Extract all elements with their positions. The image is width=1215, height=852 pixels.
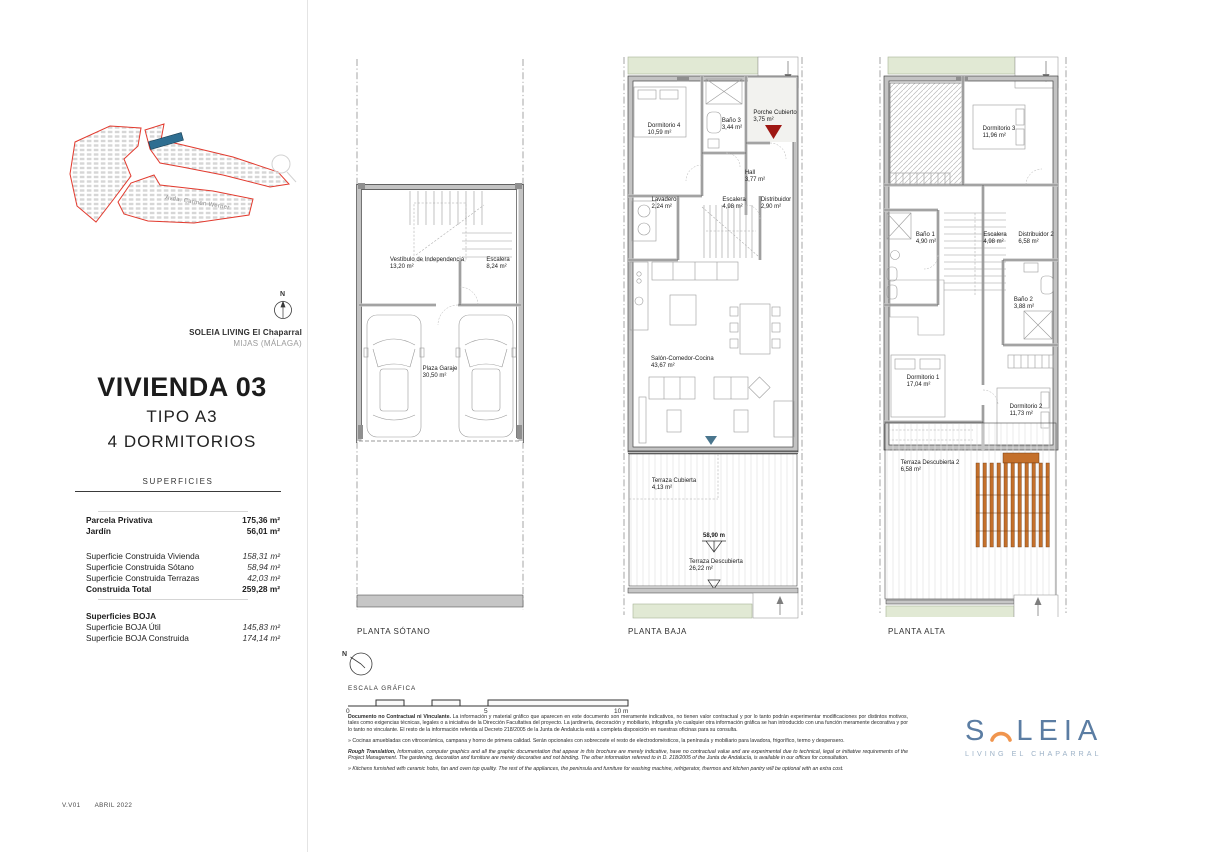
kitchen-island <box>670 295 696 325</box>
car-icon <box>364 315 424 437</box>
entry-path <box>1015 57 1058 88</box>
brand-subtitle: LIVING EL CHAPARRAL <box>965 749 1125 758</box>
tv-unit <box>639 397 646 443</box>
kitchen-counter <box>630 262 738 330</box>
row-value: 56,01 m² <box>247 526 280 537</box>
row-label: Superficie BOJA Construida <box>86 633 189 644</box>
wardrobe <box>1008 355 1053 368</box>
row-label: Jardín <box>86 526 111 537</box>
room-label-escalera-baja: Escalera4,98 m² <box>722 197 745 211</box>
room-label-salon: Salón-Comedor-Cocina43,67 m² <box>651 356 714 370</box>
room-label-distribuidor: Distribuidor2,90 m² <box>761 197 791 211</box>
table-row: Superficie Construida Sótano58,94 m² <box>86 562 280 573</box>
unit-title-block: VIVIENDA 03 TIPO A3 4 DORMITORIOS <box>62 372 302 452</box>
room-label-hall: Hall3,77 m² <box>745 170 765 184</box>
table-row: Parcela Privativa175,36 m² <box>86 515 280 526</box>
brochure-page: Avda. Carmen Werner N SOLEIA LIVING El C… <box>0 0 1215 852</box>
floorplan-sotano-drawing <box>350 57 530 617</box>
stairs <box>944 213 1006 295</box>
table-row: Jardín56,01 m² <box>86 526 280 537</box>
scale-bar-label: ESCALA GRÁFICA <box>348 685 416 692</box>
version-number: V.V01 <box>62 802 81 809</box>
table-row: Superficie Construida Terrazas42,03 m² <box>86 573 280 584</box>
car-icon <box>456 315 516 437</box>
desk-wardrobe <box>890 280 944 335</box>
brand-logo: SLEIA LIVING EL CHAPARRAL <box>965 716 1125 758</box>
disclaimer-es-kitchens: » Cocinas amuebladas con vitrocerámica, … <box>348 738 908 744</box>
north-letter: N <box>280 291 285 298</box>
scale-bar <box>348 695 633 709</box>
legal-disclaimer: Documento no Contractual ni Vinculante. … <box>348 714 908 777</box>
plan-caption-alta: PLANTA ALTA <box>888 627 945 636</box>
stairs <box>410 191 512 261</box>
garden-strip <box>628 57 758 74</box>
room-label-distribuidor2: Distribuidor 26,58 m² <box>1018 232 1053 246</box>
room-label-dormitorio4: Dormitorio 410,59 m² <box>648 123 681 137</box>
table-group-header: Superficies BOJA <box>86 611 280 622</box>
culdesac-road <box>272 155 290 173</box>
row-value: 158,31 m² <box>243 551 280 562</box>
sofa-set <box>639 377 794 443</box>
row-label: Superficie BOJA Útil <box>86 622 161 633</box>
table-row: Superficie BOJA Útil145,83 m² <box>86 622 280 633</box>
column-divider <box>307 0 308 852</box>
unit-number-title: VIVIENDA 03 <box>62 372 302 403</box>
project-title-block: SOLEIA LIVING El Chaparral MIJAS (MÁLAGA… <box>150 328 302 348</box>
row-label: Superficies BOJA <box>86 611 156 622</box>
plan-caption-baja: PLANTA BAJA <box>628 627 687 636</box>
elevation-label: 58,90 m <box>703 533 725 539</box>
surface-table-header-wrap: SUPERFICIES <box>75 477 281 492</box>
garden-wall-strip <box>357 595 523 607</box>
row-value: 259,28 m² <box>242 584 280 595</box>
logo-arc-icon <box>989 725 1013 742</box>
row-value: 175,36 m² <box>242 515 280 526</box>
terrace-access-marker-icon <box>705 436 717 445</box>
garden-strip <box>888 57 1015 74</box>
room-label-bano3: Baño 33,44 m² <box>722 118 742 132</box>
version-footer: V.V01ABRIL 2022 <box>62 802 146 809</box>
bathroom-fixtures <box>706 79 742 148</box>
version-date: ABRIL 2022 <box>95 802 133 809</box>
row-label: Superficie Construida Terrazas <box>86 573 199 584</box>
site-map: Avda. Carmen Werner <box>65 112 300 257</box>
room-label-vestibulo: Vestíbulo de Independencia13,20 m² <box>390 257 464 271</box>
disclaimer-en: Rough Translation, Information, computer… <box>348 749 908 762</box>
surface-table-header: SUPERFICIES <box>75 477 281 486</box>
table-row-total: Construida Total259,28 m² <box>86 584 280 595</box>
header-underline <box>75 491 281 492</box>
room-label-terraza-descubierta: Terraza Descubierta26,22 m² <box>689 559 743 573</box>
surface-table: Parcela Privativa175,36 m² Jardín56,01 m… <box>86 509 280 644</box>
brand-wordmark: SLEIA <box>965 716 1125 746</box>
row-label: Parcela Privativa <box>86 515 152 526</box>
floorplan-alta: Dormitorio 311,96 m² Baño 14,90 m² Escal… <box>878 55 1068 625</box>
table-row: Superficie BOJA Construida174,14 m² <box>86 633 280 644</box>
garden-strip <box>886 606 1014 617</box>
room-label-terraza-descubierta2: Terraza Descubierta 26,58 m² <box>901 460 960 474</box>
project-name: SOLEIA LIVING El Chaparral <box>150 328 302 337</box>
dining-table <box>730 304 780 354</box>
room-label-bano2: Baño 23,88 m² <box>1014 297 1034 311</box>
room-label-porche: Porche Cubierto3,75 m² <box>753 110 796 124</box>
disclaimer-es: Documento no Contractual ni Vinculante. … <box>348 714 908 733</box>
north-compass-icon: N <box>272 288 294 326</box>
room-label-escalera-alta: Escalera4,98 m² <box>983 232 1006 246</box>
row-label: Superficie Construida Sótano <box>86 562 194 573</box>
table-rule <box>98 599 248 600</box>
room-label-terraza-cubierta: Terraza Cubierta4,13 m² <box>652 478 696 492</box>
table-row: Superficie Construida Vivienda158,31 m² <box>86 551 280 562</box>
row-value: 58,94 m² <box>247 562 280 573</box>
floorplan-sotano: Vestíbulo de Independencia13,20 m² Escal… <box>350 57 530 622</box>
row-label: Construida Total <box>86 584 151 595</box>
north-letter: N <box>342 651 347 658</box>
entry-path <box>1014 595 1058 617</box>
road-stub <box>287 172 296 182</box>
terrace-deck <box>885 423 1056 599</box>
entry-path <box>753 593 798 618</box>
disclaimer-en-kitchens: » Kitchens furnished with ceramic hobs, … <box>348 766 908 772</box>
garden-strip <box>633 604 752 618</box>
floorplan-alta-drawing <box>878 55 1068 617</box>
room-label-dormitorio2: Dormitorio 211,73 m² <box>1010 404 1043 418</box>
brand-letter-s: S <box>965 716 990 746</box>
room-label-bano1: Baño 14,90 m² <box>916 232 936 246</box>
row-label: Superficie Construida Vivienda <box>86 551 199 562</box>
room-label-lavadero: Lavadero2,24 m² <box>651 197 676 211</box>
plan-caption-sotano: PLANTA SÓTANO <box>357 627 430 636</box>
north-compass-icon: N <box>340 646 378 680</box>
room-label-dormitorio3: Dormitorio 311,96 m² <box>983 126 1016 140</box>
double-height-void <box>890 83 963 185</box>
project-location: MIJAS (MÁLAGA) <box>150 339 302 348</box>
table-rule <box>98 511 248 512</box>
bathroom-fixtures <box>887 213 911 299</box>
brand-letters-leia: LEIA <box>1016 716 1103 746</box>
row-value: 42,03 m² <box>247 573 280 584</box>
unit-bedrooms-subtitle: 4 DORMITORIOS <box>62 432 302 452</box>
room-label-plaza-garaje: Plaza Garaje30,50 m² <box>423 366 458 380</box>
room-label-escalera-sotano: Escalera8,24 m² <box>486 257 509 271</box>
unit-type-subtitle: TIPO A3 <box>62 407 302 427</box>
stairs <box>702 205 758 258</box>
row-value: 145,83 m² <box>243 622 280 633</box>
row-value: 174,14 m² <box>243 633 280 644</box>
room-label-dormitorio1: Dormitorio 117,04 m² <box>907 375 940 389</box>
floorplan-baja: Dormitorio 410,59 m² Baño 33,44 m² Porch… <box>622 55 804 625</box>
